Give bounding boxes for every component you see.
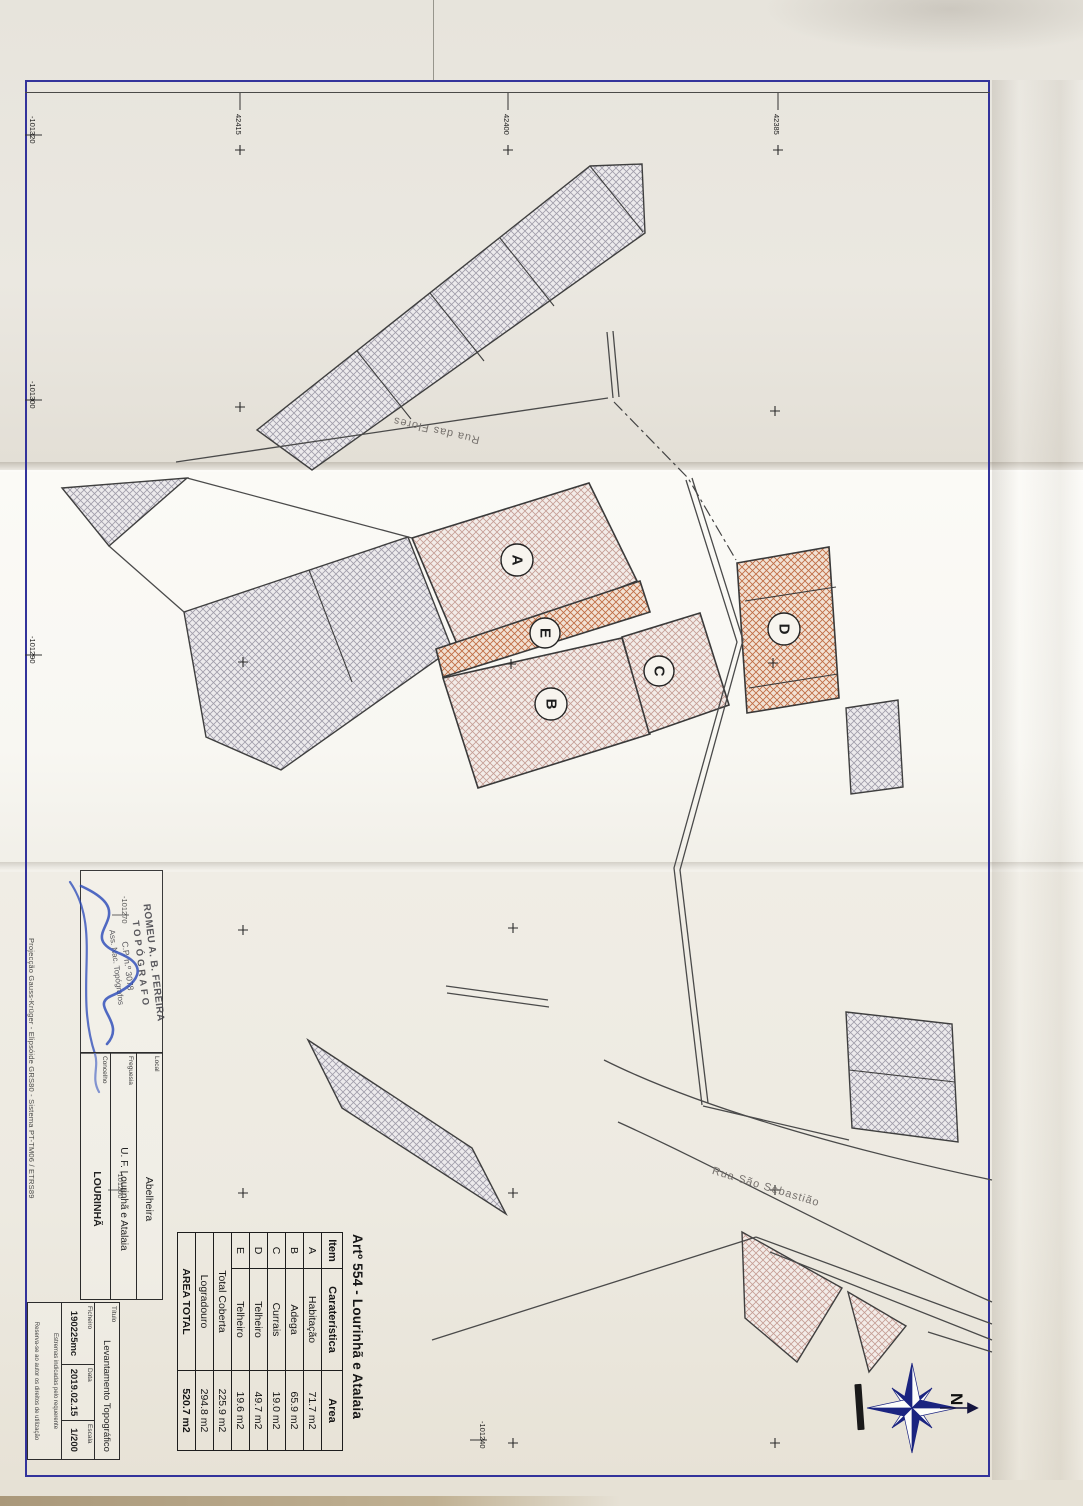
- field-data: Data 2019.02.15: [62, 1365, 94, 1421]
- summary-row: Logradouro 294.8 m2: [196, 1233, 214, 1451]
- areas-block: Artº 554 - Lourinhã e Atalaia Item Carat…: [140, 1232, 365, 1462]
- row-c-name: Currais: [268, 1269, 286, 1371]
- field-titulo-value: Levantamento Topográfico: [95, 1333, 119, 1459]
- svg-text:C: C: [651, 666, 668, 677]
- svg-text:A: A: [509, 555, 526, 566]
- table-row: C Currais 19.0 m2: [268, 1233, 286, 1451]
- row-b-name: Adega: [286, 1269, 304, 1371]
- svg-text:D: D: [776, 624, 793, 635]
- summary-total-value: 520.7 m2: [178, 1371, 196, 1451]
- table-row: D Telheiro 49.7 m2: [250, 1233, 268, 1451]
- field-ficheiro-label: Ficheiro: [86, 1303, 94, 1364]
- parcel-left-strip: [184, 537, 452, 770]
- meta-row: Ficheiro 190225mc Data 2019.02.15 Escala…: [61, 1303, 94, 1459]
- field-freguesia-value: U. F. Lourinhã e Atalaia: [111, 1099, 136, 1299]
- row-a-area: 71.7 m2: [304, 1371, 322, 1451]
- row-b-item: B: [286, 1233, 304, 1269]
- row-d-item: D: [250, 1233, 268, 1269]
- areas-table: Item Caraterística Area A Habitação 71.7…: [177, 1232, 343, 1451]
- parcel-bottom-tri-1: [742, 1232, 842, 1362]
- field-data-value: 2019.02.15: [62, 1365, 86, 1420]
- row-c-item: C: [268, 1233, 286, 1269]
- grid-label-left-6: -101240: [478, 1421, 487, 1449]
- header-area: Area: [322, 1371, 343, 1451]
- parcel-right-strip: [846, 1012, 958, 1142]
- field-concelho-label: Concelho: [83, 1053, 109, 1099]
- summary-coberta-label: Total Coberta: [214, 1233, 232, 1371]
- summary-logradouro-label: Logradouro: [196, 1233, 214, 1371]
- path-top-stub: [607, 331, 619, 398]
- row-c-area: 19.0 m2: [268, 1371, 286, 1451]
- svg-text:B: B: [543, 699, 560, 710]
- field-ficheiro: Ficheiro 190225mc: [62, 1303, 94, 1365]
- building-label-e: E: [530, 618, 560, 648]
- scanned-survey-sheet: 42415 42400 42385 -101320 -101300 -10129…: [0, 0, 1083, 1506]
- titulo-box: Título Levantamento Topográfico Ficheiro…: [27, 1302, 120, 1460]
- field-escala: Escala 1/200: [62, 1421, 94, 1459]
- field-titulo: Título Levantamento Topográfico: [94, 1303, 119, 1459]
- north-label: N: [947, 1393, 966, 1405]
- field-freguesia-label: Freguesia: [111, 1053, 136, 1099]
- street-label-sebastiao: Rua São Sebastião: [711, 1165, 821, 1209]
- corridor-line-2: [680, 478, 743, 1103]
- field-freguesia: Freguesia U. F. Lourinhã e Atalaia: [110, 1053, 136, 1299]
- field-ficheiro-value: 190225mc: [62, 1303, 86, 1364]
- summary-row-total: AREA TOTAL 520.7 m2: [178, 1233, 196, 1451]
- table-row: A Habitação 71.7 m2: [304, 1233, 322, 1451]
- field-concelho: Concelho LOURINHÃ: [83, 1053, 109, 1299]
- row-a-name: Habitação: [304, 1269, 322, 1371]
- road-lines: [109, 331, 992, 1352]
- field-escala-value: 1/200: [62, 1421, 86, 1459]
- fine-print-line-2: Reserva-se ao autor os direitos de utili…: [33, 1303, 39, 1459]
- grid-label-top-2: 42400: [502, 114, 511, 135]
- grid-label-top-3: 42385: [772, 114, 781, 135]
- parcel-bottom-left: [308, 1040, 506, 1214]
- header-item: Item: [322, 1233, 343, 1269]
- grid-label-left-3: -101290: [28, 636, 37, 664]
- parcel-right-small: [846, 700, 903, 794]
- bottom-corner-lines: [432, 1237, 992, 1352]
- parcel-bottom-tri-2: [848, 1292, 906, 1372]
- building-label-d: D: [768, 613, 800, 645]
- row-a-item: A: [304, 1233, 322, 1269]
- fine-print-line-1: Estremas indicadas pelo requerente: [52, 1303, 58, 1459]
- summary-logradouro-value: 294.8 m2: [196, 1371, 214, 1451]
- projection-note: Projecção Gauss-Krüger - Elipsóide GRS80…: [27, 938, 36, 1199]
- field-concelho-value: LOURINHÃ: [83, 1099, 109, 1299]
- compass-scale-bar: [854, 1384, 864, 1430]
- table-row: B Adega 65.9 m2: [286, 1233, 304, 1451]
- article-heading: Artº 554 - Lourinhã e Atalaia: [350, 1234, 365, 1462]
- row-d-area: 49.7 m2: [250, 1371, 268, 1451]
- row-e-area: 19.6 m2: [232, 1371, 250, 1451]
- field-titulo-label: Título: [95, 1303, 119, 1333]
- grid-label-left-1: -101320: [28, 116, 37, 144]
- field-escala-label: Escala: [86, 1421, 94, 1459]
- street-sebastiao-inner: [703, 1106, 849, 1140]
- parcel-left-triangle: [62, 478, 187, 546]
- header-caracteristica: Caraterística: [322, 1269, 343, 1371]
- row-b-area: 65.9 m2: [286, 1371, 304, 1451]
- row-d-name: Telheiro: [250, 1269, 268, 1371]
- corridor-line-1: [674, 480, 737, 1105]
- table-row: E Telheiro 19.6 m2: [232, 1233, 250, 1451]
- field-local-label: Local: [137, 1053, 162, 1099]
- wall-segment: [446, 986, 549, 1007]
- areas-table-header: Item Caraterística Area: [322, 1233, 343, 1451]
- building-label-b: B: [535, 688, 567, 720]
- summary-row: Total Coberta 225.9 m2: [214, 1233, 232, 1451]
- summary-coberta-value: 225.9 m2: [214, 1371, 232, 1451]
- row-e-name: Telheiro: [232, 1269, 250, 1371]
- building-label-c: C: [644, 656, 674, 686]
- svg-text:E: E: [537, 628, 554, 638]
- summary-total-label: AREA TOTAL: [178, 1233, 196, 1371]
- fine-print: Estremas indicadas pelo requerente Reser…: [30, 1303, 61, 1459]
- building-label-a: A: [501, 544, 533, 576]
- road-axis-dashdot: [614, 402, 736, 560]
- grid-label-left-2: -101300: [28, 381, 37, 409]
- grid-label-top-1: 42415: [234, 114, 243, 135]
- row-e-item: E: [232, 1233, 250, 1269]
- field-data-label: Data: [86, 1365, 94, 1420]
- parcel-top-band: [257, 164, 645, 470]
